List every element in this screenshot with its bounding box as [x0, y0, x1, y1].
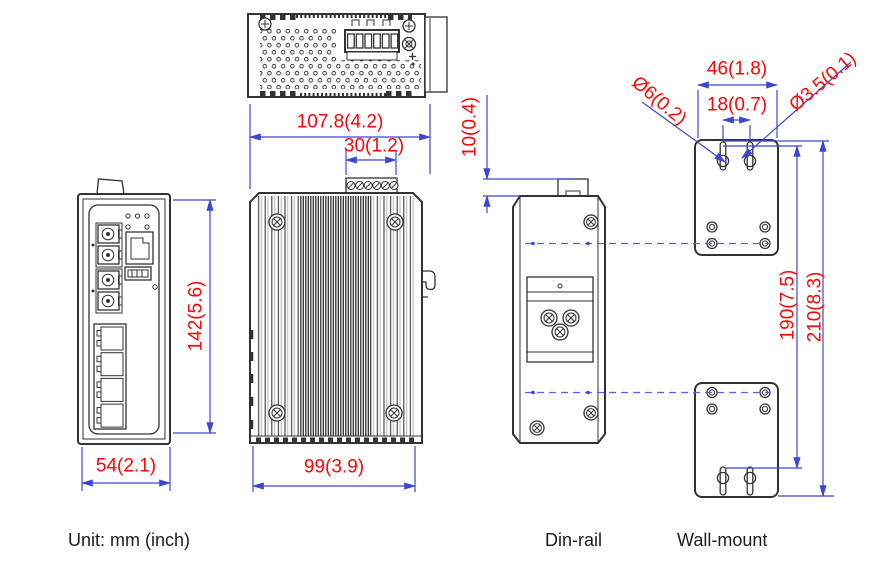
- din-rail-view-drawing: [513, 179, 605, 443]
- dim-label-keyhole-spacing: 18(0.7): [707, 96, 767, 115]
- dim-label-hole-span: 190(7.5): [779, 270, 798, 341]
- rear-view-drawing: [250, 178, 435, 443]
- wall-mount-view-drawing: [695, 140, 778, 497]
- top-view-drawing: [248, 14, 447, 97]
- dim-label-front-width: 54(2.1): [96, 457, 156, 476]
- din-rail-hook: [422, 271, 435, 297]
- unit-note: Unit: mm (inch): [68, 531, 190, 549]
- dim-label-plate-width: 46(1.8): [707, 60, 767, 79]
- dim-label-rear-width: 99(3.9): [304, 458, 364, 477]
- wall-mount-caption: Wall-mount: [677, 531, 767, 549]
- dim-label-clip-offset: 10(0.4): [461, 97, 480, 157]
- front-view-drawing: [78, 179, 170, 444]
- dim-label-terminal-width: 30(1.2): [344, 137, 404, 156]
- line-art: [0, 0, 895, 577]
- dim-label-top-width: 107.8(4.2): [297, 113, 384, 132]
- mechanical-drawing-page: 107.8(4.2) 30(1.2) 142(5.6) 54(2.1) 99(3…: [0, 0, 895, 577]
- dim-label-front-height: 142(5.6): [187, 281, 206, 352]
- din-rail-caption: Din-rail: [545, 531, 602, 549]
- dim-label-plate-height: 210(8.3): [806, 272, 825, 343]
